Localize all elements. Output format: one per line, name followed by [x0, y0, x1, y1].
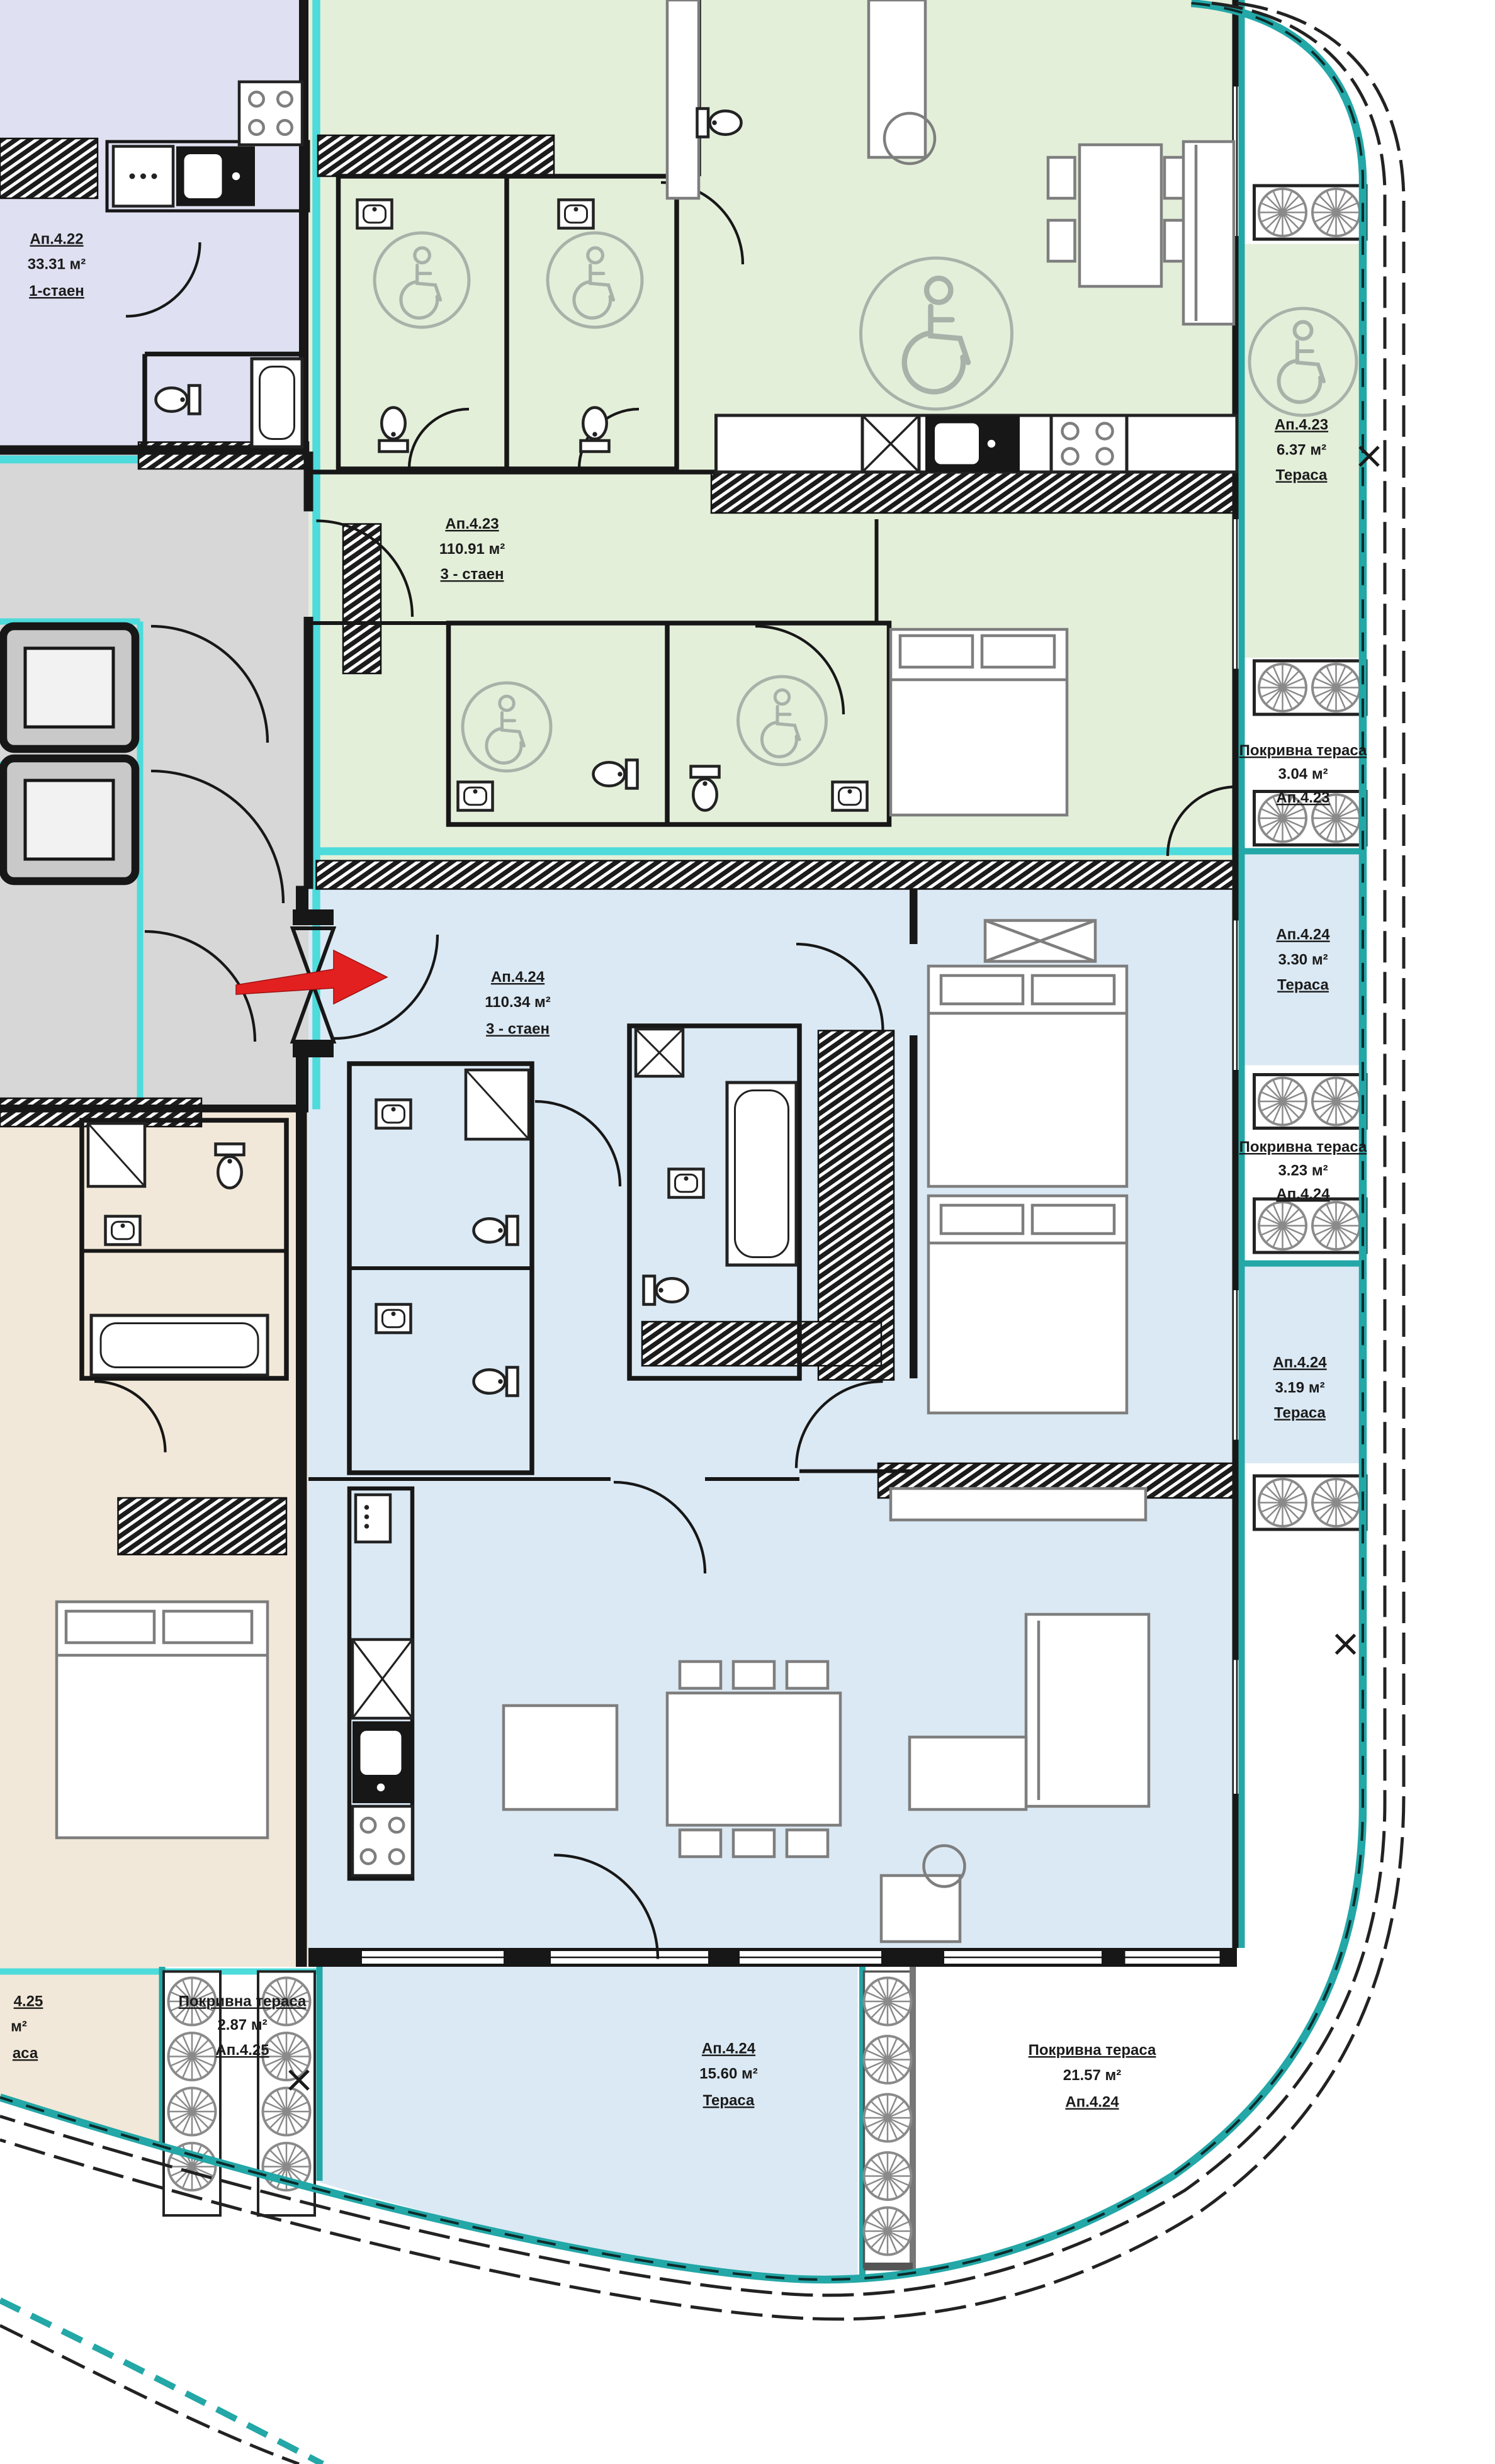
- terrace-423-area: 6.37 м²: [1277, 442, 1326, 459]
- terrace-424-main-kind: Тераса: [703, 2092, 755, 2109]
- terrace-423-kind: Тераса: [1276, 467, 1328, 484]
- apartment-423-type: 3 - стаен: [441, 566, 504, 583]
- roof-terrace-424a-id: Ап.4.24: [1276, 1186, 1330, 1203]
- roof-terrace-424-main-kind: Покривна тераса: [1029, 2042, 1156, 2059]
- roof-terrace-425-kind: Покривна тераса: [179, 1993, 307, 2010]
- terrace-424-region: [320, 1967, 858, 2277]
- terrace-424b-area: 3.19 м²: [1275, 1380, 1324, 1397]
- apartment-422-area: 33.31 м²: [28, 256, 86, 273]
- apartment-424-id: Ап.4.24: [491, 969, 545, 986]
- terrace-424-main-id: Ап.4.24: [702, 2040, 756, 2057]
- apartment-424-type: 3 - стаен: [486, 1021, 550, 1038]
- apartment-425-kind-fragment: аса: [13, 2045, 38, 2062]
- apartment-422-id: Ап.4.22: [30, 231, 83, 248]
- label-roof-terrace-424a: Покривна тераса 3.23 м² Ап.4.24: [1239, 1139, 1367, 1203]
- terrace-424a-kind: Тераса: [1277, 977, 1329, 994]
- roof-terrace-424-main-id: Ап.4.24: [1065, 2094, 1119, 2111]
- roof-terrace-423-id: Ап.4.23: [1276, 789, 1329, 806]
- terrace-424b-id: Ап.4.24: [1273, 1354, 1327, 1371]
- apartment-424-area: 110.34 м²: [485, 994, 551, 1011]
- apartment-423-id: Ап.4.23: [445, 515, 499, 532]
- roof-terrace-425-area: 2.87 м²: [217, 2017, 267, 2034]
- roof-terrace-424a-area: 3.23 м²: [1278, 1162, 1328, 1179]
- label-apartment-423: Ап.4.23 110.91 м² 3 - стаен: [439, 515, 505, 583]
- apartment-425-id-fragment: 4.25: [14, 1993, 43, 2010]
- apartment-423-area: 110.91 м²: [439, 541, 505, 558]
- roof-terrace-423-kind: Покривна тераса: [1239, 742, 1367, 759]
- roof-terrace-423-area: 3.04 м²: [1278, 766, 1328, 783]
- label-apartment-424: Ап.4.24 110.34 м² 3 - стаен: [485, 969, 551, 1037]
- label-terrace-424b: Ап.4.24 3.19 м² Тераса: [1273, 1354, 1327, 1422]
- terrace-423-id: Ап.4.23: [1275, 417, 1328, 434]
- label-terrace-424a: Ап.4.24 3.30 м² Тераса: [1276, 926, 1330, 994]
- apartment-422-type: 1-стаен: [29, 283, 84, 300]
- floor-plan: Ап.4.22 33.31 м² 1-стаен Ап.4.23 110.91 …: [0, 0, 1495, 2464]
- label-apartment-422: Ап.4.22 33.31 м² 1-стаен: [28, 231, 86, 300]
- apartment-425-area-fragment: м²: [11, 2018, 27, 2035]
- label-terrace-424-main: Ап.4.24 15.60 м² Тераса: [699, 2040, 757, 2110]
- roof-terrace-424a-kind: Покривна тераса: [1239, 1139, 1367, 1156]
- roof-terrace-425-id: Ап.4.25: [215, 2042, 269, 2059]
- label-terrace-423: Ап.4.23 6.37 м² Тераса: [1275, 417, 1328, 484]
- floor-plan-page: Ап.4.22 33.31 м² 1-стаен Ап.4.23 110.91 …: [0, 0, 1495, 2464]
- label-roof-terrace-424-main: Покривна тераса 21.57 м² Ап.4.24: [1029, 2042, 1156, 2111]
- terrace-424a-id: Ап.4.24: [1276, 926, 1330, 943]
- terrace-424a-area: 3.30 м²: [1278, 952, 1328, 969]
- roof-terrace-424-main-area: 21.57 м²: [1063, 2067, 1121, 2084]
- terrace-424b-kind: Тераса: [1274, 1405, 1326, 1422]
- terrace-424-main-area: 15.60 м²: [699, 2066, 757, 2083]
